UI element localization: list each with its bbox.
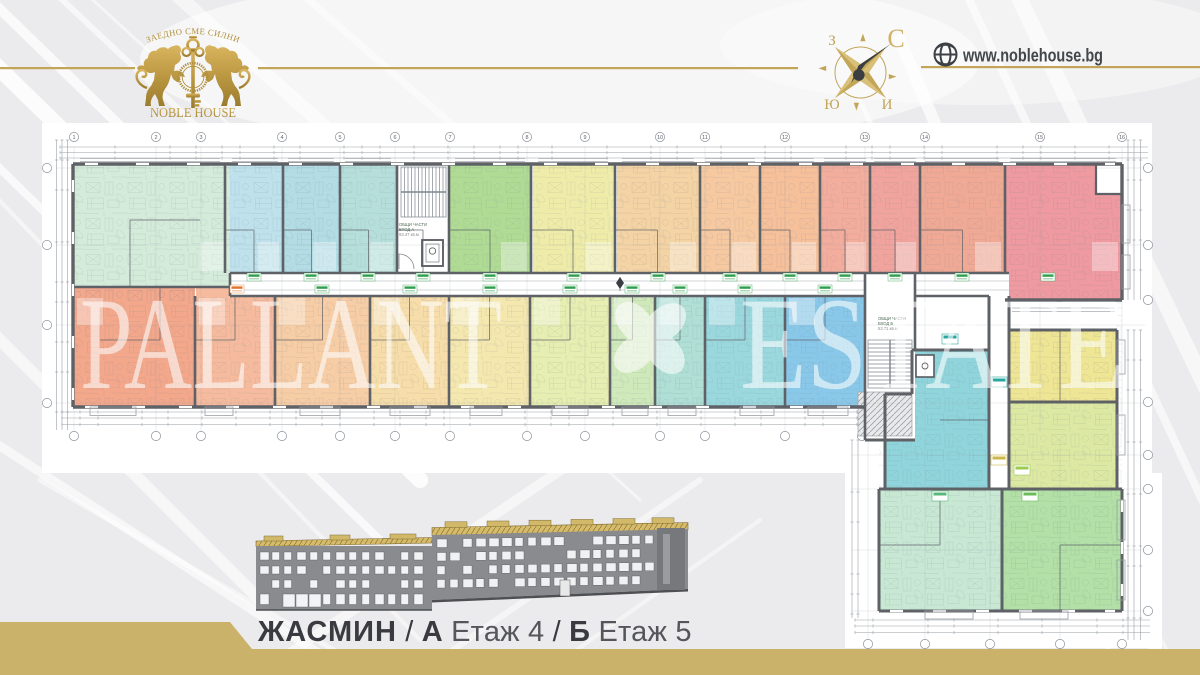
svg-text:Ю: Ю bbox=[824, 97, 839, 113]
svg-text:14: 14 bbox=[922, 135, 928, 141]
svg-text:10: 10 bbox=[657, 135, 663, 141]
svg-text:9: 9 bbox=[583, 135, 586, 141]
svg-text:NOBLE HOUSE: NOBLE HOUSE bbox=[150, 105, 236, 120]
svg-text:13: 13 bbox=[862, 135, 868, 141]
svg-text:15: 15 bbox=[1037, 135, 1043, 141]
svg-text:PALLANT: PALLANT bbox=[80, 270, 502, 417]
svg-text:С: С bbox=[887, 24, 904, 53]
svg-text:И: И bbox=[882, 97, 893, 113]
svg-text:11: 11 bbox=[702, 135, 708, 141]
svg-text:www.noblehouse.bg: www.noblehouse.bg bbox=[962, 45, 1103, 66]
svg-text:4: 4 bbox=[280, 135, 283, 141]
svg-text:16: 16 bbox=[1119, 135, 1125, 141]
svg-text:7: 7 bbox=[448, 135, 451, 141]
svg-text:93.47 кв.м: 93.47 кв.м bbox=[399, 232, 419, 237]
svg-text:6: 6 bbox=[393, 135, 396, 141]
svg-text:ESTATE: ESTATE bbox=[740, 270, 1125, 417]
svg-text:3: 3 bbox=[199, 135, 202, 141]
svg-text:З: З bbox=[828, 33, 836, 49]
svg-text:5: 5 bbox=[338, 135, 341, 141]
svg-text:1: 1 bbox=[72, 135, 75, 141]
svg-text:12: 12 bbox=[782, 135, 788, 141]
svg-text:8: 8 bbox=[525, 135, 528, 141]
svg-text:2: 2 bbox=[154, 135, 157, 141]
svg-text:ЖАСМИН / А Етаж 4 / Б Етаж 5: ЖАСМИН / А Етаж 4 / Б Етаж 5 bbox=[257, 616, 692, 648]
